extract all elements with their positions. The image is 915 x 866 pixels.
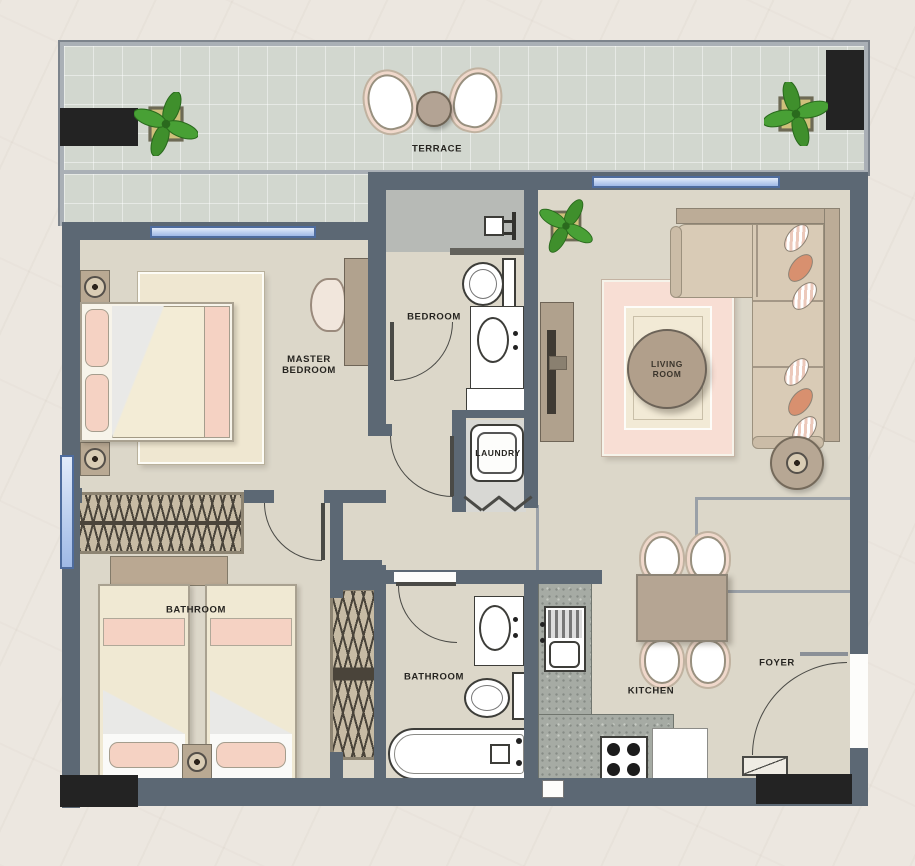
lamp-icon [84,276,106,298]
shower-bracket [512,212,516,240]
label-master-line1: MASTER [287,354,331,365]
beam-line-v2 [536,505,539,572]
wall-kitchen-top [526,570,602,584]
bath2-door-leaf [396,582,456,586]
bed-band [210,618,292,646]
bed-pillow [85,309,109,367]
burner [627,743,640,756]
bedroom2-dresser [110,556,228,586]
tv-icon [547,330,556,414]
window-master [150,226,316,238]
bed-pillow [109,742,179,768]
beam-line-h1 [695,497,852,500]
bed-pillow [216,742,286,768]
terrace-floor-lower [60,174,374,226]
shoe-rack [742,756,788,776]
label-foyer: FOYER [759,658,795,669]
label-terrace: TERRACE [412,144,462,155]
window-living [592,176,780,188]
wall-mid-left [368,172,386,436]
window-bedroom2 [60,455,74,569]
label-kitchen: KITCHEN [628,686,674,697]
vanity-counter [470,306,524,390]
label-living-line1: LIVING [651,359,683,369]
faucet-dot [513,633,518,638]
column-bottom-right [756,774,852,804]
wall-bottom [62,778,868,806]
vanity-counter [474,596,524,666]
bed-fold [210,690,292,734]
sofa-back-top [676,208,840,224]
floor-plan: TERRACE MASTER BEDROOM BEDROOM LAUNDRY L… [0,0,915,866]
wall-mid-bottom-stub [368,424,392,436]
faucet-dot [540,622,545,627]
lamp-icon [786,452,808,474]
terrace-table [416,91,452,127]
plant-icon [134,92,198,156]
stove-icon [600,736,648,784]
plant-icon [538,198,594,254]
wall-bed2-top-c [324,490,386,503]
shower-curb [450,248,524,255]
toilet-icon [462,262,504,306]
label-master-line2: BEDROOM [282,365,336,376]
shower-head-icon [484,216,504,236]
shower-arm [504,220,512,223]
lamp-icon [84,448,106,470]
kitchen-sink [544,606,586,672]
burner [607,763,620,776]
bedroom2-door-leaf [321,503,325,560]
toilet-icon [464,678,510,718]
sink-icon [477,317,509,363]
bathtub-icon [388,728,530,780]
burner [627,763,640,776]
faucet-dot [513,345,518,350]
toilet-bowl-inner [471,685,503,711]
column-bottom-left [60,775,138,807]
tub-faucet [490,744,510,764]
master-bed [80,302,234,442]
master-armchair [310,278,346,332]
label-laundry: LAUNDRY [475,448,520,458]
column-terrace-right [826,50,864,130]
bed-fold [103,690,185,734]
sink-icon [479,605,511,651]
label-bedroom2: BATHROOM [166,605,226,616]
bed-foot-band [204,306,230,438]
sofa-divider [756,225,758,297]
faucet-dot [513,617,518,622]
bath2-door-opening [394,572,456,582]
faucet-dot [540,638,545,643]
dining-table [636,574,728,642]
bed-band [103,618,185,646]
dining-chair [690,640,726,684]
sofa-back-right [824,208,840,442]
wall-bed2-top-b [244,490,274,503]
wall-laundry-top [452,410,538,418]
bed-fold [112,306,164,438]
entrance-door-stub [800,652,848,656]
master-wardrobe [76,492,244,554]
kitchen-appliance [652,728,708,784]
entrance-opening [850,654,868,748]
dining-chair [644,640,680,684]
label-master-bedroom: MASTER BEDROOM [282,354,336,376]
faucet-dot [516,738,522,744]
media-box [549,356,567,370]
lamp-icon [187,752,207,772]
toilet-tank [502,258,516,308]
tv-console [540,302,574,442]
label-bathroom: BATHROOM [404,672,464,683]
sink-drainer [548,610,582,638]
label-bedroom: BEDROOM [407,312,461,323]
service-hatch [542,780,564,798]
sofa-armrest-left [670,226,682,298]
shower-arm [504,232,512,235]
terrace-planter-bar [60,108,138,146]
wall-mid-right [524,190,538,508]
label-living-line2: ROOM [653,369,682,379]
wall-bath2-right [524,584,538,784]
toilet-bowl-inner [469,269,497,299]
wall-bed2-right-c [330,752,343,782]
midbath-door-leaf [390,322,394,380]
faucet-dot [516,760,522,766]
wall-bath2-left [374,565,386,790]
burner [607,743,620,756]
plant-icon [764,82,828,146]
label-living-room: LIVING ROOM [651,359,683,379]
bed-pillow [85,374,109,432]
faucet-dot [513,331,518,336]
sink-basin [549,641,580,668]
master-door-leaf [450,436,454,496]
